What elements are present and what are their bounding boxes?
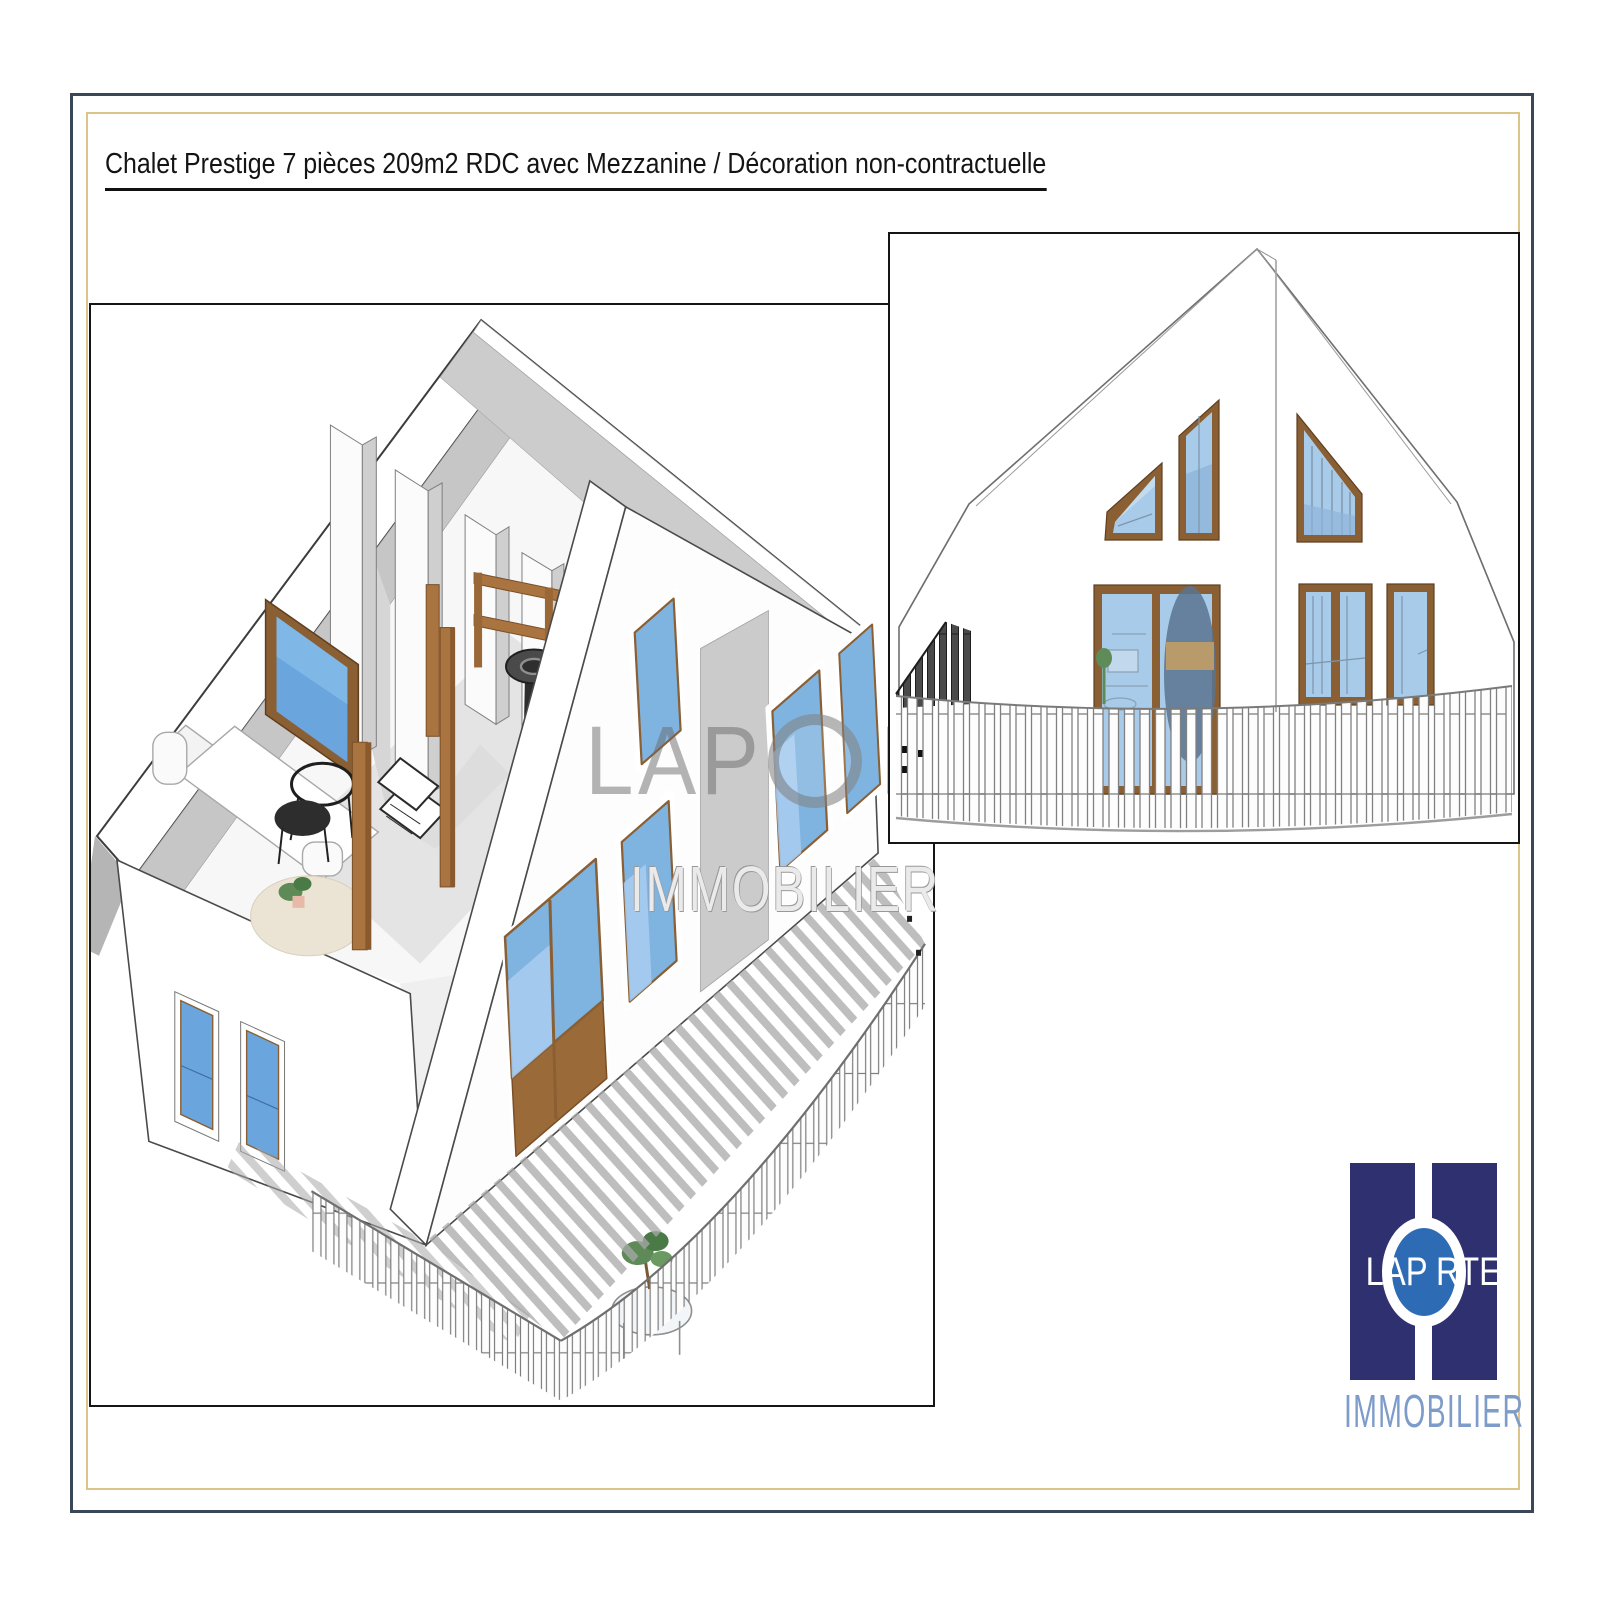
logo-brand-right: RTE [1436, 1252, 1515, 1292]
isometric-cutaway-rendering-panel [89, 303, 935, 1407]
front-elevation-rendering-panel [888, 232, 1520, 844]
logo-subtitle: IMMOBILIER [1344, 1388, 1504, 1434]
page-title: Chalet Prestige 7 pièces 209m2 RDC avec … [105, 148, 1046, 191]
laporte-immobilier-logo: LAP RTE IMMOBILIER [1350, 1163, 1500, 1433]
page: Chalet Prestige 7 pièces 209m2 RDC avec … [0, 0, 1600, 1600]
logo-brand-left: LAP [1352, 1252, 1414, 1292]
isometric-cutaway-rendering [91, 305, 933, 1405]
front-elevation-rendering [890, 234, 1518, 842]
page-title-text: Chalet Prestige 7 pièces 209m2 RDC avec … [105, 148, 1046, 191]
